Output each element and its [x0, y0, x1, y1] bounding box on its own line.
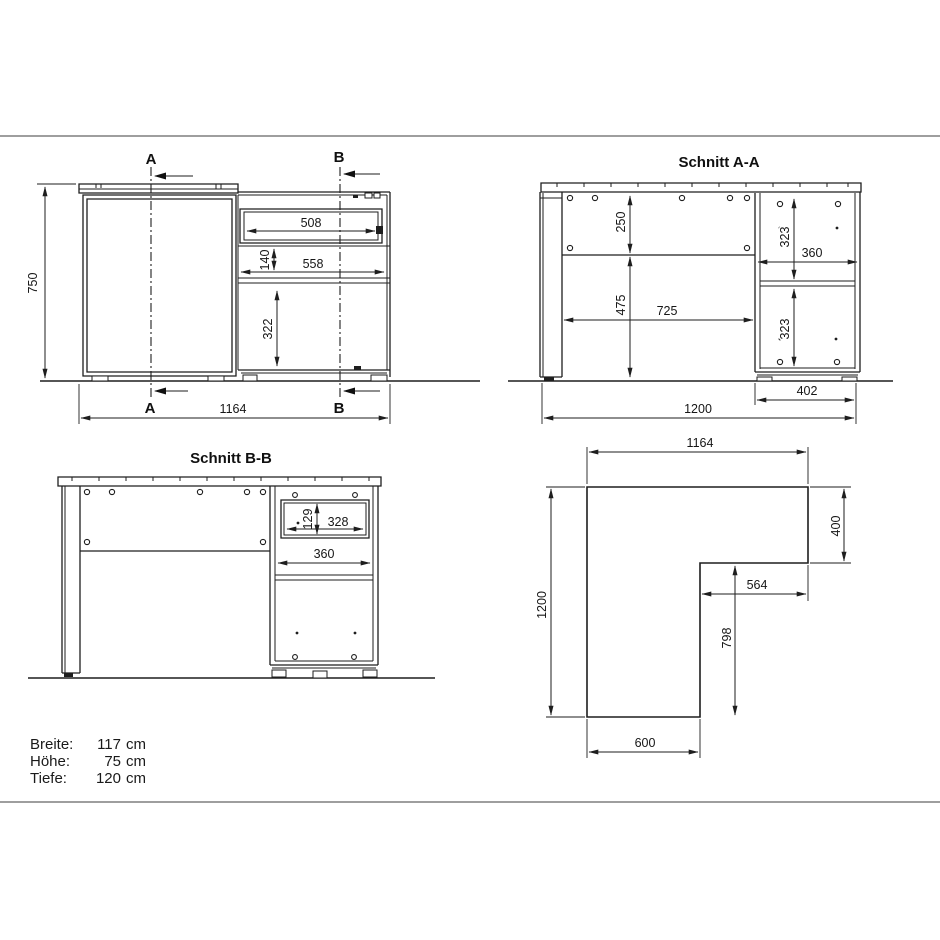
- aa-leg-foot: [544, 377, 554, 381]
- front-dim-140: 140: [258, 250, 272, 271]
- front-dim-750: 750: [26, 273, 40, 294]
- aa-detail-lines: [540, 183, 848, 377]
- front-drawer-lock: [376, 226, 383, 234]
- front-hinge-fittings: [365, 193, 380, 198]
- aa-dim-360: 360: [802, 246, 823, 260]
- bb-dim-360: 360: [314, 547, 335, 561]
- plan-lshape-outline: [587, 487, 808, 717]
- front-dim-508: 508: [301, 216, 322, 230]
- technical-drawing-page: A B A B 750 508 140 558 322 1164 Schnitt…: [0, 0, 940, 940]
- spec-value: 120: [94, 770, 121, 787]
- bb-cabinet-detail: [272, 486, 376, 668]
- plan-dim-1200: 1200: [535, 591, 549, 619]
- section-b-label-top: B: [334, 149, 345, 166]
- spec-label: Breite:: [30, 736, 94, 753]
- dimension-specs: Breite:117cm Höhe:75cm Tiefe:120cm: [30, 736, 146, 787]
- plan-dim-798: 798: [720, 628, 734, 649]
- bb-dim-328: 328: [328, 515, 349, 529]
- section-aa-title: Schnitt A-A: [678, 154, 759, 171]
- plan-extension-lines: [546, 447, 851, 758]
- front-view: A B A B 750 508 140 558 322 1164: [26, 149, 480, 424]
- aa-body-outline: [540, 183, 861, 377]
- front-base-mark: [354, 366, 361, 370]
- section-a-label-top: A: [146, 151, 157, 168]
- aa-dim-250: 250: [614, 212, 628, 233]
- plan-dim-564: 564: [747, 578, 768, 592]
- bb-leg-foot: [64, 673, 73, 677]
- furniture-dimension-drawing: A B A B 750 508 140 558 322 1164 Schnitt…: [0, 0, 940, 940]
- spec-label: Tiefe:: [30, 770, 94, 787]
- aa-cabinet-outline: [755, 192, 860, 372]
- aa-dim-475: 475: [614, 295, 628, 316]
- front-top-tick-marks: [96, 184, 221, 189]
- plan-dim-1164: 1164: [687, 436, 714, 450]
- section-aa-view: Schnitt A-A 250 475 725 323: [508, 154, 893, 424]
- section-a-label-bottom: A: [145, 400, 156, 417]
- aa-dim-1200: 1200: [684, 402, 712, 416]
- spec-unit: cm: [126, 736, 146, 753]
- plan-view: 1164 400 564 798 1200 600: [535, 436, 851, 758]
- section-b-label-bottom: B: [334, 400, 345, 417]
- bb-cabinet-feet: [272, 670, 377, 678]
- spec-row-breite: Breite:117cm: [30, 736, 146, 753]
- front-dim-558: 558: [303, 257, 324, 271]
- spec-value: 117: [94, 736, 121, 753]
- front-dim-1164: 1164: [220, 402, 247, 416]
- spec-unit: cm: [126, 753, 146, 770]
- bb-fitting-holes: [84, 489, 357, 659]
- section-bb-title: Schnitt B-B: [190, 450, 272, 467]
- front-body-outline: [79, 184, 390, 377]
- spec-value: 75: [94, 753, 121, 770]
- aa-cabinet-detail: [757, 193, 858, 375]
- plan-dim-600: 600: [635, 736, 656, 750]
- spec-unit: cm: [126, 770, 146, 787]
- spec-row-tiefe: Tiefe:120cm: [30, 770, 146, 787]
- aa-dim-402: 402: [797, 384, 818, 398]
- front-hinge-dot: [353, 195, 358, 198]
- front-extension-lines: [37, 184, 390, 424]
- plan-dim-400: 400: [829, 516, 843, 537]
- spec-label: Höhe:: [30, 753, 94, 770]
- bb-dim-129: 129: [301, 509, 315, 530]
- spec-row-hoehe: Höhe:75cm: [30, 753, 146, 770]
- aa-dim-323-top: 323: [778, 227, 792, 248]
- front-body-detail-lines: [79, 189, 390, 373]
- front-dim-322: 322: [261, 319, 275, 340]
- aa-dim-323-bottom: 323: [778, 319, 792, 340]
- aa-dim-725: 725: [657, 304, 678, 318]
- bb-drawer-outline: [281, 500, 369, 538]
- section-bb-view: Schnitt B-B 129 328 360: [28, 450, 435, 678]
- bb-drawer-inner: [284, 503, 366, 535]
- aa-fitting-holes: [567, 195, 840, 364]
